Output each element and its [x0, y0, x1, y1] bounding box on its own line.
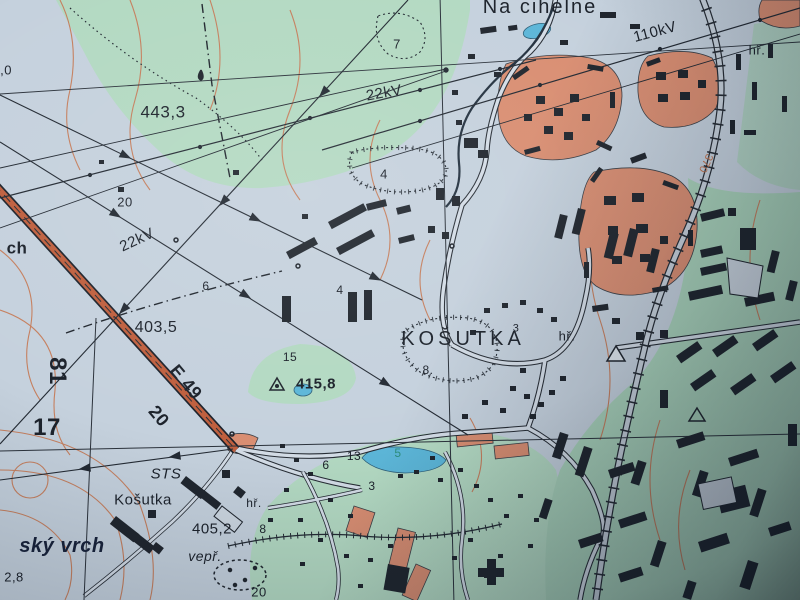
number-15: 15: [283, 351, 297, 363]
elevation-403: 403,5: [135, 320, 178, 336]
elevation-partial-edge: ,0: [0, 64, 12, 77]
pit-depth-4: 4: [380, 168, 388, 181]
number-20-bottom: 20: [251, 586, 266, 599]
pit-depth-7: 7: [393, 38, 401, 51]
number-13: 13: [347, 450, 361, 462]
elevation-partial-2-8: 2,8: [4, 571, 24, 584]
playground-label-mid: hř.: [559, 330, 576, 343]
pit-depth-8: 8.: [422, 364, 433, 376]
number-6-village: 6: [322, 459, 329, 471]
playground-label-sw: hř.: [246, 497, 262, 509]
place-label-na-cihelne: Na cihelne: [483, 0, 598, 17]
church-cross-v: [487, 559, 496, 585]
elevation-405: 405,2: [192, 522, 232, 537]
forest-meadow-top: [56, 0, 470, 188]
number-4-center: 4: [336, 284, 343, 296]
hill-name-partial: ský vrch: [19, 536, 104, 556]
number-8-bottom: 8: [259, 523, 266, 535]
grid-number-17: 17: [33, 416, 61, 440]
place-label-kosutka-small: Košutka: [114, 493, 172, 508]
number-3: 3: [368, 480, 375, 492]
place-label-partial-ch: ch: [7, 240, 28, 257]
place-label-kosutka: KOŠUTKA: [401, 329, 525, 349]
sts-label: STS: [151, 467, 182, 482]
grid-number-81: 81: [45, 357, 69, 385]
elevation-443: 443,3: [140, 104, 185, 121]
map-photo: Na cihelne 110kV hř. 443,3 7 22kV 4 370 …: [0, 0, 800, 600]
playground-label-ne: hř.: [749, 44, 766, 57]
e49-road: [0, 184, 236, 450]
elevation-415: 415,8: [296, 377, 336, 392]
boundary-number-6: 6: [202, 280, 209, 292]
pond-number-5: 5: [394, 447, 401, 459]
kosutka-superscript: 3: [513, 324, 520, 335]
number-20-top: 20: [117, 196, 132, 209]
pig-farm-label: vepř.: [188, 549, 222, 563]
